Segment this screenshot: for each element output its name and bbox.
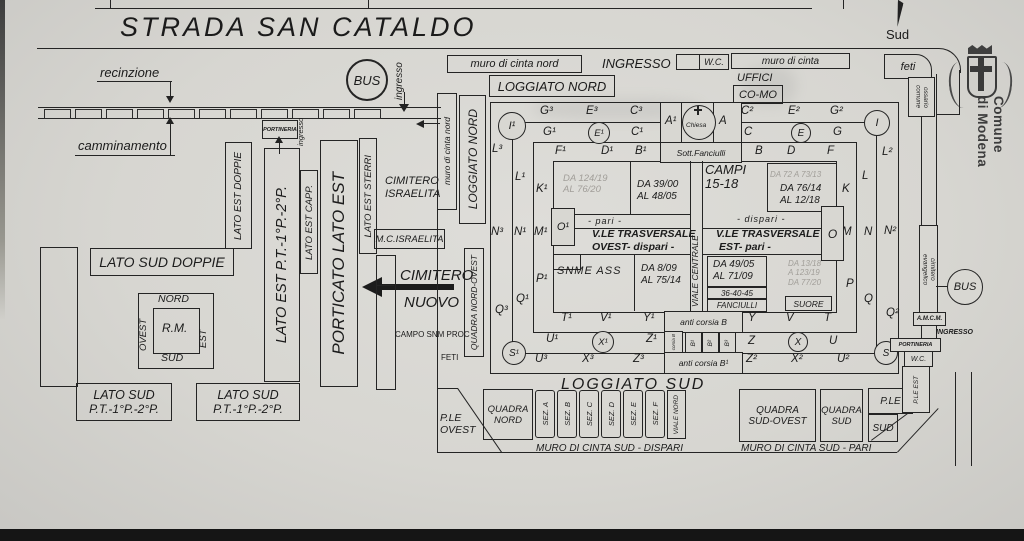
section-z1: Z¹ [646, 333, 657, 346]
crest-wordmark: Comune di Modena [958, 96, 1006, 231]
lato-est-capp-block: LATO EST CAPP. [300, 170, 318, 274]
ple-est-block: P.LE EST [902, 366, 930, 413]
campo-snm-label: CAMPO SNM PROC [395, 331, 470, 340]
field-dates: DA 49/05AL 71/09 [713, 259, 754, 283]
lato-sud-block-1: LATO SUD P.T.-1°P.-2°P. [76, 383, 172, 421]
sez-f-block: SEZ. F [645, 390, 665, 438]
fanciulli-box: FANCIULLI [707, 298, 767, 312]
west-wall-line [437, 208, 438, 452]
field-dates-faint: DA 124/19AL 76/20 [563, 173, 608, 195]
ne-corner-wall [936, 48, 961, 73]
street-tick [368, 0, 369, 9]
bus-stop-badge: BUS [346, 59, 388, 101]
campo-snm-divider [376, 285, 394, 286]
corsia-b3-box: B³ [719, 332, 736, 354]
section-z: Z [748, 335, 755, 348]
crest-wordmark-line2: di Modena [974, 96, 990, 231]
field-dates-faint: DA 13/18A 123/19DA 77/20 [788, 259, 821, 287]
section-n3: N³ [491, 226, 503, 239]
crest-wordmark-line1: Comune [990, 96, 1006, 231]
street-tick [110, 0, 111, 9]
amcm-box: A.M.C.M. [913, 312, 946, 326]
anti-corsia-b-box: anti corsia B [664, 311, 743, 333]
chiesa-label: Chiesa [686, 122, 706, 129]
campo-snm-feti-label: FETI [441, 354, 458, 363]
ingresso-nord-label: INGRESSO [602, 57, 671, 72]
section-g: G [833, 126, 842, 139]
quadra-sud-block: QUADRA SUD [820, 389, 863, 442]
section-u1: U¹ [546, 333, 558, 346]
field-dates: DA 76/14AL 12/18 [780, 183, 821, 207]
section-q3: Q³ [495, 304, 508, 317]
section-q: Q [864, 293, 873, 306]
street-tick [843, 0, 844, 9]
scanned-cemetery-map: STRADA SAN CATALDO Sud Comune di Modena … [0, 0, 1024, 541]
section-c3: C³ [630, 105, 642, 118]
section-n2: N² [884, 225, 896, 238]
down-arrow-icon [166, 96, 174, 103]
section-marker-e1: E¹ [588, 122, 610, 144]
section-c: C [744, 126, 752, 139]
section-marker-x: X [788, 332, 808, 352]
ingresso-east-label: INGRESSO [936, 329, 973, 337]
sez-b-block: SEZ. B [557, 390, 577, 438]
section-marker-x1: X¹ [592, 331, 614, 353]
section-marker-s1: S¹ [502, 341, 526, 365]
street-south-line [37, 48, 937, 49]
pari-label: - pari - [588, 216, 622, 226]
viale-nord-block: VIALE NORD [667, 390, 686, 439]
section-a1: A¹ [665, 115, 677, 128]
cimitero-israelita-label: CIMITEROISRAELITA [385, 175, 440, 201]
section-v1: V¹ [600, 312, 612, 325]
wc-nord-box: W.C. [699, 54, 729, 70]
field-dates: DA 8/09AL 75/14 [641, 263, 681, 287]
suore-box: SUORE [785, 296, 832, 311]
section-l2: L² [882, 146, 892, 159]
mc-israelita-box: M.C.ISRAELITA [374, 229, 445, 249]
section-marker-i: I [864, 110, 890, 136]
east-road-line [971, 372, 972, 466]
section-o-box: O [821, 206, 844, 261]
campi-15-18-label: CAMPI15-18 [705, 163, 746, 190]
sez-a-block: SEZ. A [535, 390, 555, 438]
sez-c-block: SEZ. C [579, 390, 599, 438]
bus-stop-east-badge: BUS [947, 269, 983, 305]
section-c1: C¹ [631, 126, 643, 139]
ple-ovest-top-edge [437, 388, 458, 389]
section-g2: G² [830, 105, 843, 118]
ingresso-west-arrow [279, 142, 280, 154]
section-m1: M¹ [534, 226, 547, 239]
section-b: B [755, 145, 763, 158]
camminamento-label: camminamento [78, 139, 167, 154]
cimitero-nuovo-label-2: NUOVO [404, 295, 459, 312]
lato-sud-doppie-block: LATO SUD DOPPIE [90, 248, 234, 276]
field-divider [634, 254, 635, 311]
anti-corsia-b1-box: anti corsia B¹ [664, 352, 743, 374]
fence-hatch [106, 109, 133, 119]
east-wall-line [959, 70, 960, 115]
section-u3: U³ [535, 353, 547, 366]
uffici-label: UFFICI [737, 72, 772, 84]
quadra-nord-ovest-block: QUADRA NORD-OVEST [464, 248, 484, 357]
crest-cross-icon [978, 58, 984, 91]
section-l: L [862, 170, 868, 183]
campo-snm-strip [376, 255, 396, 390]
feti-box: feti [884, 54, 932, 79]
fence-hatch [44, 109, 71, 119]
section-f: F [827, 145, 834, 158]
lato-sud-block-2: LATO SUD P.T.-1°P.-2°P. [196, 383, 300, 421]
section-marker-i1: I¹ [498, 112, 526, 140]
section-p: P [846, 278, 854, 291]
fence-hatch [75, 109, 102, 119]
rm-est-label: EST [199, 314, 210, 348]
section-n1: N¹ [514, 226, 526, 239]
ingresso-west-label: ingresso [297, 112, 305, 146]
wc-east-box: W.C. [904, 351, 933, 367]
section-t1: T¹ [561, 312, 572, 325]
section-e3: E³ [586, 105, 598, 118]
corsia-b-box: corsia B [664, 331, 683, 354]
photo-left-edge [0, 0, 5, 320]
cross-icon [694, 109, 702, 111]
ple-ovest-label: P.LEOVEST [440, 412, 476, 437]
field-dates: DA 39/00AL 48/05 [637, 179, 678, 203]
section-d1: D¹ [601, 145, 613, 158]
section-z2: Z² [746, 353, 757, 366]
section-b1: B¹ [635, 145, 647, 158]
west-wing-block [40, 247, 78, 387]
section-q1: Q¹ [516, 293, 529, 306]
section-v: V [786, 312, 794, 325]
field-dates-faint: DA 72 A 73/13 [770, 171, 821, 180]
section-y1: Y¹ [643, 312, 655, 325]
section-o1-box: O¹ [551, 208, 575, 246]
ovest-dispari-label: OVEST- dispari - [592, 242, 674, 254]
rm-center-label: R.M. [162, 322, 187, 335]
section-c2: C² [741, 105, 753, 118]
recinzione-underline [97, 81, 172, 82]
sez-e-block: SEZ. E [623, 390, 643, 438]
photo-bottom-edge [0, 529, 1024, 541]
section-u2: U² [837, 353, 849, 366]
rm-ovest-label: OVEST [139, 309, 150, 351]
vle-trasversale-est-label: V.LE TRASVERSALE [716, 229, 819, 241]
section-g1: G¹ [543, 126, 556, 139]
section-k: K [842, 183, 850, 196]
lato-est-doppie-block: LATO EST DOPPIE [225, 142, 252, 249]
street-north-line [95, 8, 812, 9]
fence-hatch [354, 109, 381, 119]
section-marker-e: E [791, 123, 811, 143]
dispari-label: - dispari - [737, 214, 786, 224]
camminamento-underline [75, 155, 175, 156]
snme-ass-label: SNME ASS [557, 265, 621, 277]
fence-hatch [199, 109, 226, 119]
viale-centrale-label: VIALE CENTRALE [691, 207, 701, 307]
south-wall-line [437, 452, 897, 453]
loggiato-nord-west-block: LOGGIATO NORD [459, 95, 486, 224]
compass-south-label: Sud [886, 28, 909, 43]
sott-fanciulli-box: Sott.Fanciulli [660, 142, 742, 163]
section-a: A [719, 115, 727, 128]
section-y: Y [748, 312, 756, 325]
porticato-lato-est-block: PORTICATO LATO EST [320, 140, 358, 387]
muro-cinta-nord-box: muro di cinta nord [447, 55, 582, 73]
fence-hatch [261, 109, 288, 119]
field-divider [630, 161, 631, 214]
compass-needle [894, 0, 904, 27]
rm-sud-label: SUD [161, 353, 183, 365]
loggiato-nord-box: LOGGIATO NORD [489, 75, 615, 97]
section-f1: F¹ [555, 145, 566, 158]
east-wall-step [936, 114, 960, 115]
section-x2: X² [791, 353, 803, 366]
viale-centrale-wall [702, 161, 703, 311]
lato-est-pt-block: LATO EST P.T.-1°P.-2°P. [264, 148, 300, 382]
cimitero-evangelico-block: cimiteroevangelico [919, 225, 938, 314]
fence-hatch [323, 109, 350, 119]
quadra-sud-ovest-block: QUADRA SUD-OVEST [739, 389, 816, 442]
fence-hatch [230, 109, 257, 119]
portineria-east-box: PORTINERIA [890, 338, 941, 352]
section-e2: E² [788, 105, 800, 118]
section-x3: X³ [582, 353, 594, 366]
section-t: T [824, 312, 831, 325]
camminamento-leader [170, 122, 171, 155]
muro-cinta-box: muro di cinta [731, 53, 850, 69]
corsia-b1-box: B¹ [685, 332, 702, 354]
sez-d-block: SEZ. D [601, 390, 621, 438]
corsia-b2-box: B² [702, 332, 719, 354]
crest-crown [968, 45, 992, 54]
section-l3: L³ [492, 143, 502, 156]
section-k1: K¹ [536, 183, 548, 196]
section-q2: Q² [886, 307, 899, 320]
vle-trasversale-ovest-label: V.LE TRASVERSALE [592, 229, 695, 241]
rm-nord-label: NORD [158, 294, 189, 306]
section-p1: P¹ [536, 273, 548, 286]
quadra-nord-block: QUADRA NORD [483, 389, 533, 440]
ossario-comune-block: ossariocomune [908, 77, 935, 117]
crest-cross-icon [970, 66, 992, 72]
east-road-line [955, 372, 956, 466]
section-d: D [787, 145, 795, 158]
up-arrow-icon [275, 136, 283, 143]
left-arrow-icon [416, 120, 424, 128]
street-name: STRADA SAN CATALDO [120, 12, 477, 42]
recinzione-label: recinzione [100, 66, 159, 81]
up-arrow-icon [166, 117, 174, 124]
section-l1: L¹ [515, 171, 525, 184]
est-pari-label: EST- pari - [719, 242, 771, 254]
fence-hatch [137, 109, 164, 119]
section-g3: G³ [540, 105, 553, 118]
section-u: U [829, 335, 837, 348]
muro-cinta-nord-west-block: muro di cinta nord [437, 93, 457, 210]
section-z3: Z³ [633, 353, 644, 366]
section-n: N [864, 226, 872, 239]
